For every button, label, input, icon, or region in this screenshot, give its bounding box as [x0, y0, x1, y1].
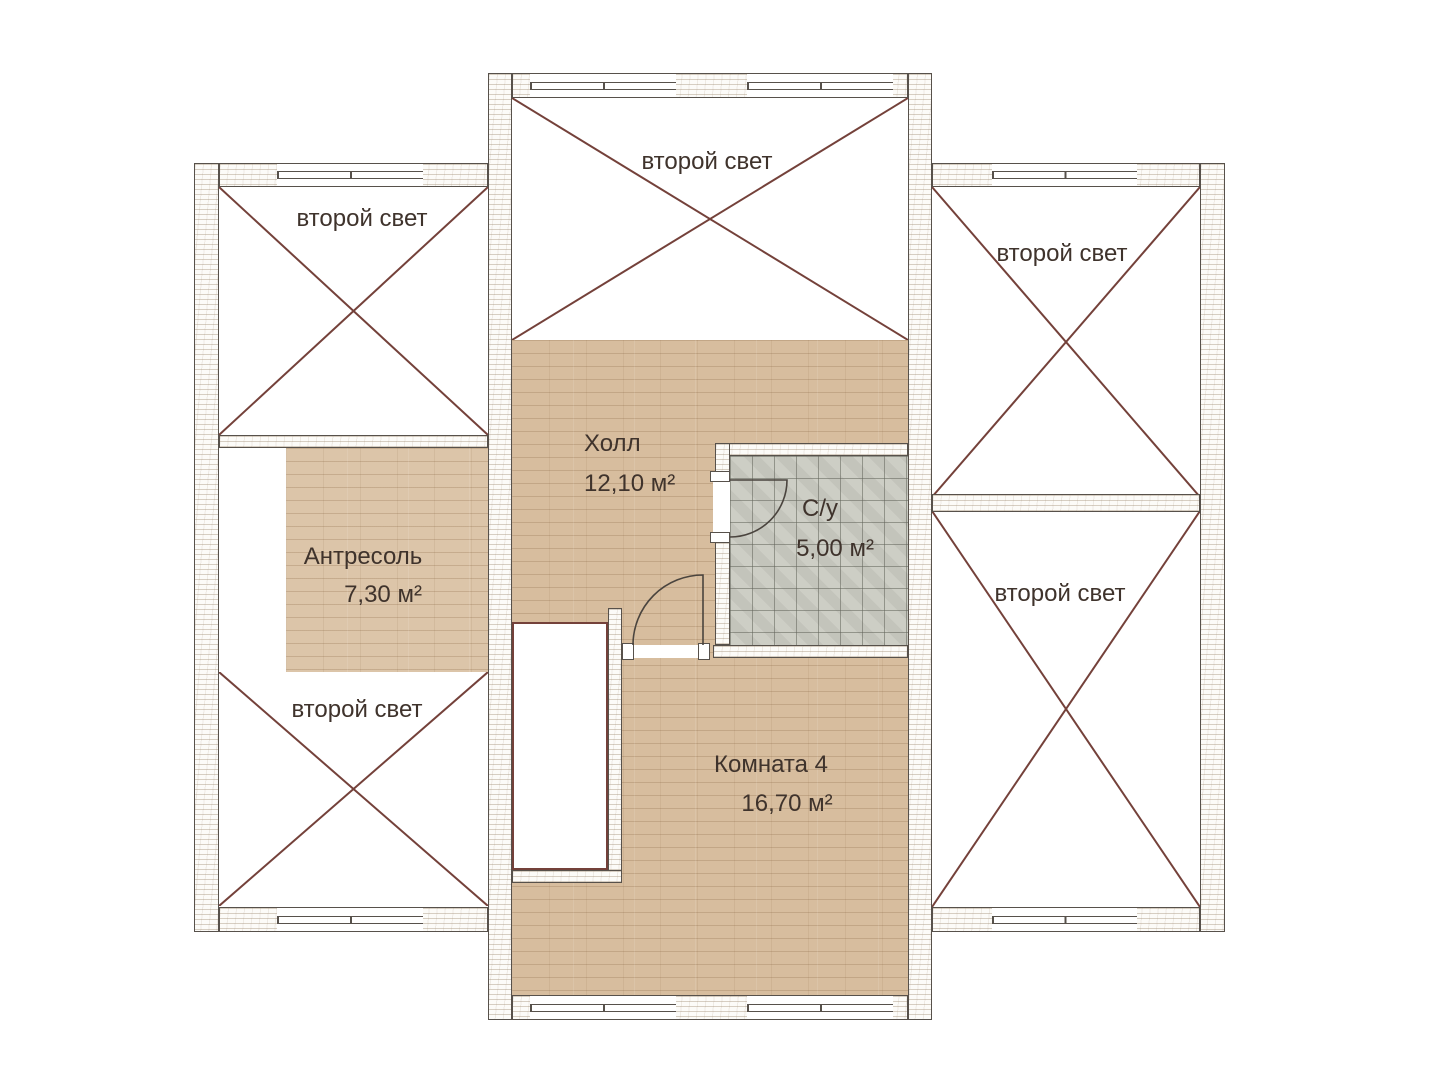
- double-height-cross: [512, 98, 908, 340]
- double-height-label-right-top: второй свет: [996, 242, 1127, 266]
- room4-name-label: Комната 4: [714, 753, 828, 777]
- wall-center-west: [488, 73, 512, 1020]
- bathroom-name-label: С/у: [802, 497, 838, 521]
- hall-name-label: Холл: [584, 432, 641, 456]
- stair-void: [512, 622, 608, 870]
- wall-stair-void-east: [608, 608, 622, 883]
- double-height-zone-right-bottom: [932, 511, 1200, 907]
- double-height-cross: [932, 187, 1200, 497]
- window-left-wing-north: [277, 163, 423, 187]
- floor-plan: второй свет второй свет второй свет втор…: [0, 0, 1440, 1080]
- wall-right-wing-east: [1200, 163, 1225, 932]
- window-glazing: [992, 916, 1137, 924]
- double-height-label-left-bottom: второй свет: [291, 698, 422, 722]
- double-height-label-right-bottom: второй свет: [994, 582, 1125, 606]
- wall-bathroom-west-lower: [715, 532, 730, 645]
- wall-stair-void-south: [512, 870, 622, 883]
- wall-center-east: [908, 73, 932, 1020]
- bathroom-area-label: 5,00 м²: [796, 537, 874, 561]
- window-center-south-1: [530, 995, 676, 1020]
- window-glazing: [992, 171, 1137, 179]
- double-height-zone-right-top: [932, 187, 1200, 497]
- window-right-wing-south: [992, 907, 1137, 932]
- wall-left-wing-middle: [219, 435, 488, 448]
- wall-bathroom-north: [715, 443, 908, 456]
- window-glazing: [277, 171, 423, 179]
- bathroom-door-swing-icon: [725, 475, 792, 542]
- window-right-wing-north: [992, 163, 1137, 187]
- wall-right-wing-middle: [932, 494, 1200, 512]
- double-height-zone-center-top: [512, 98, 908, 340]
- double-height-cross: [932, 511, 1200, 907]
- window-glazing: [277, 916, 423, 924]
- window-center-north-2: [747, 73, 893, 98]
- window-glazing: [747, 82, 893, 90]
- wall-hall-room4: [713, 645, 908, 658]
- room4-area-label: 16,70 м²: [741, 792, 832, 816]
- hall-area-label: 12,10 м²: [584, 472, 675, 496]
- wall-left-wing-west: [194, 163, 219, 932]
- window-glazing: [530, 1004, 676, 1012]
- window-left-wing-south: [277, 907, 423, 932]
- double-height-label-left-top: второй свет: [296, 207, 427, 231]
- window-center-south-2: [747, 995, 893, 1020]
- room4-door-swing-icon: [628, 570, 708, 650]
- window-center-north-1: [530, 73, 676, 98]
- window-glazing: [747, 1004, 893, 1012]
- double-height-label-center-top: второй свет: [641, 150, 772, 174]
- mezzanine-name-label: Антресоль: [304, 545, 423, 569]
- window-glazing: [530, 82, 676, 90]
- mezzanine-area-label: 7,30 м²: [344, 583, 422, 607]
